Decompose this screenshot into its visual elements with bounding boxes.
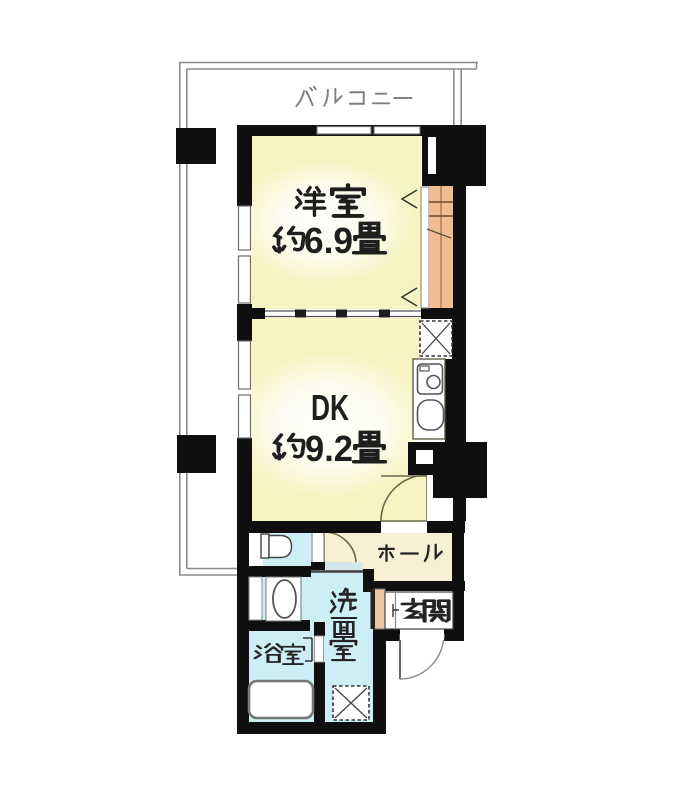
svg-text:6.9: 6.9 <box>304 220 353 261</box>
svg-text:DK: DK <box>311 387 349 428</box>
svg-text:9.2: 9.2 <box>305 428 353 469</box>
